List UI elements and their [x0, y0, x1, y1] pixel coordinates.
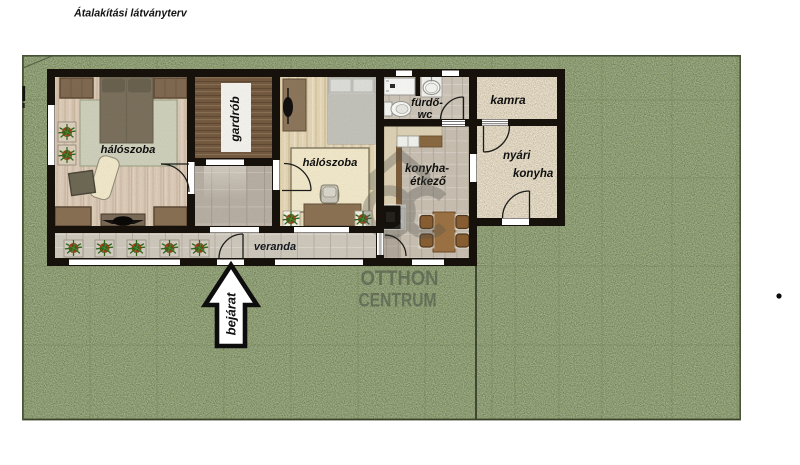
svg-text:OTTHON: OTTHON — [361, 267, 439, 290]
svg-text:nyári: nyári — [503, 150, 531, 162]
svg-text:CENTRUM: CENTRUM — [359, 290, 437, 312]
svg-text:bejárat: bejárat — [224, 292, 239, 335]
svg-text:konyha: konyha — [513, 168, 554, 180]
svg-text:kamra: kamra — [490, 93, 526, 107]
svg-text:Átalakítási látványterv: Átalakítási látványterv — [73, 7, 188, 20]
